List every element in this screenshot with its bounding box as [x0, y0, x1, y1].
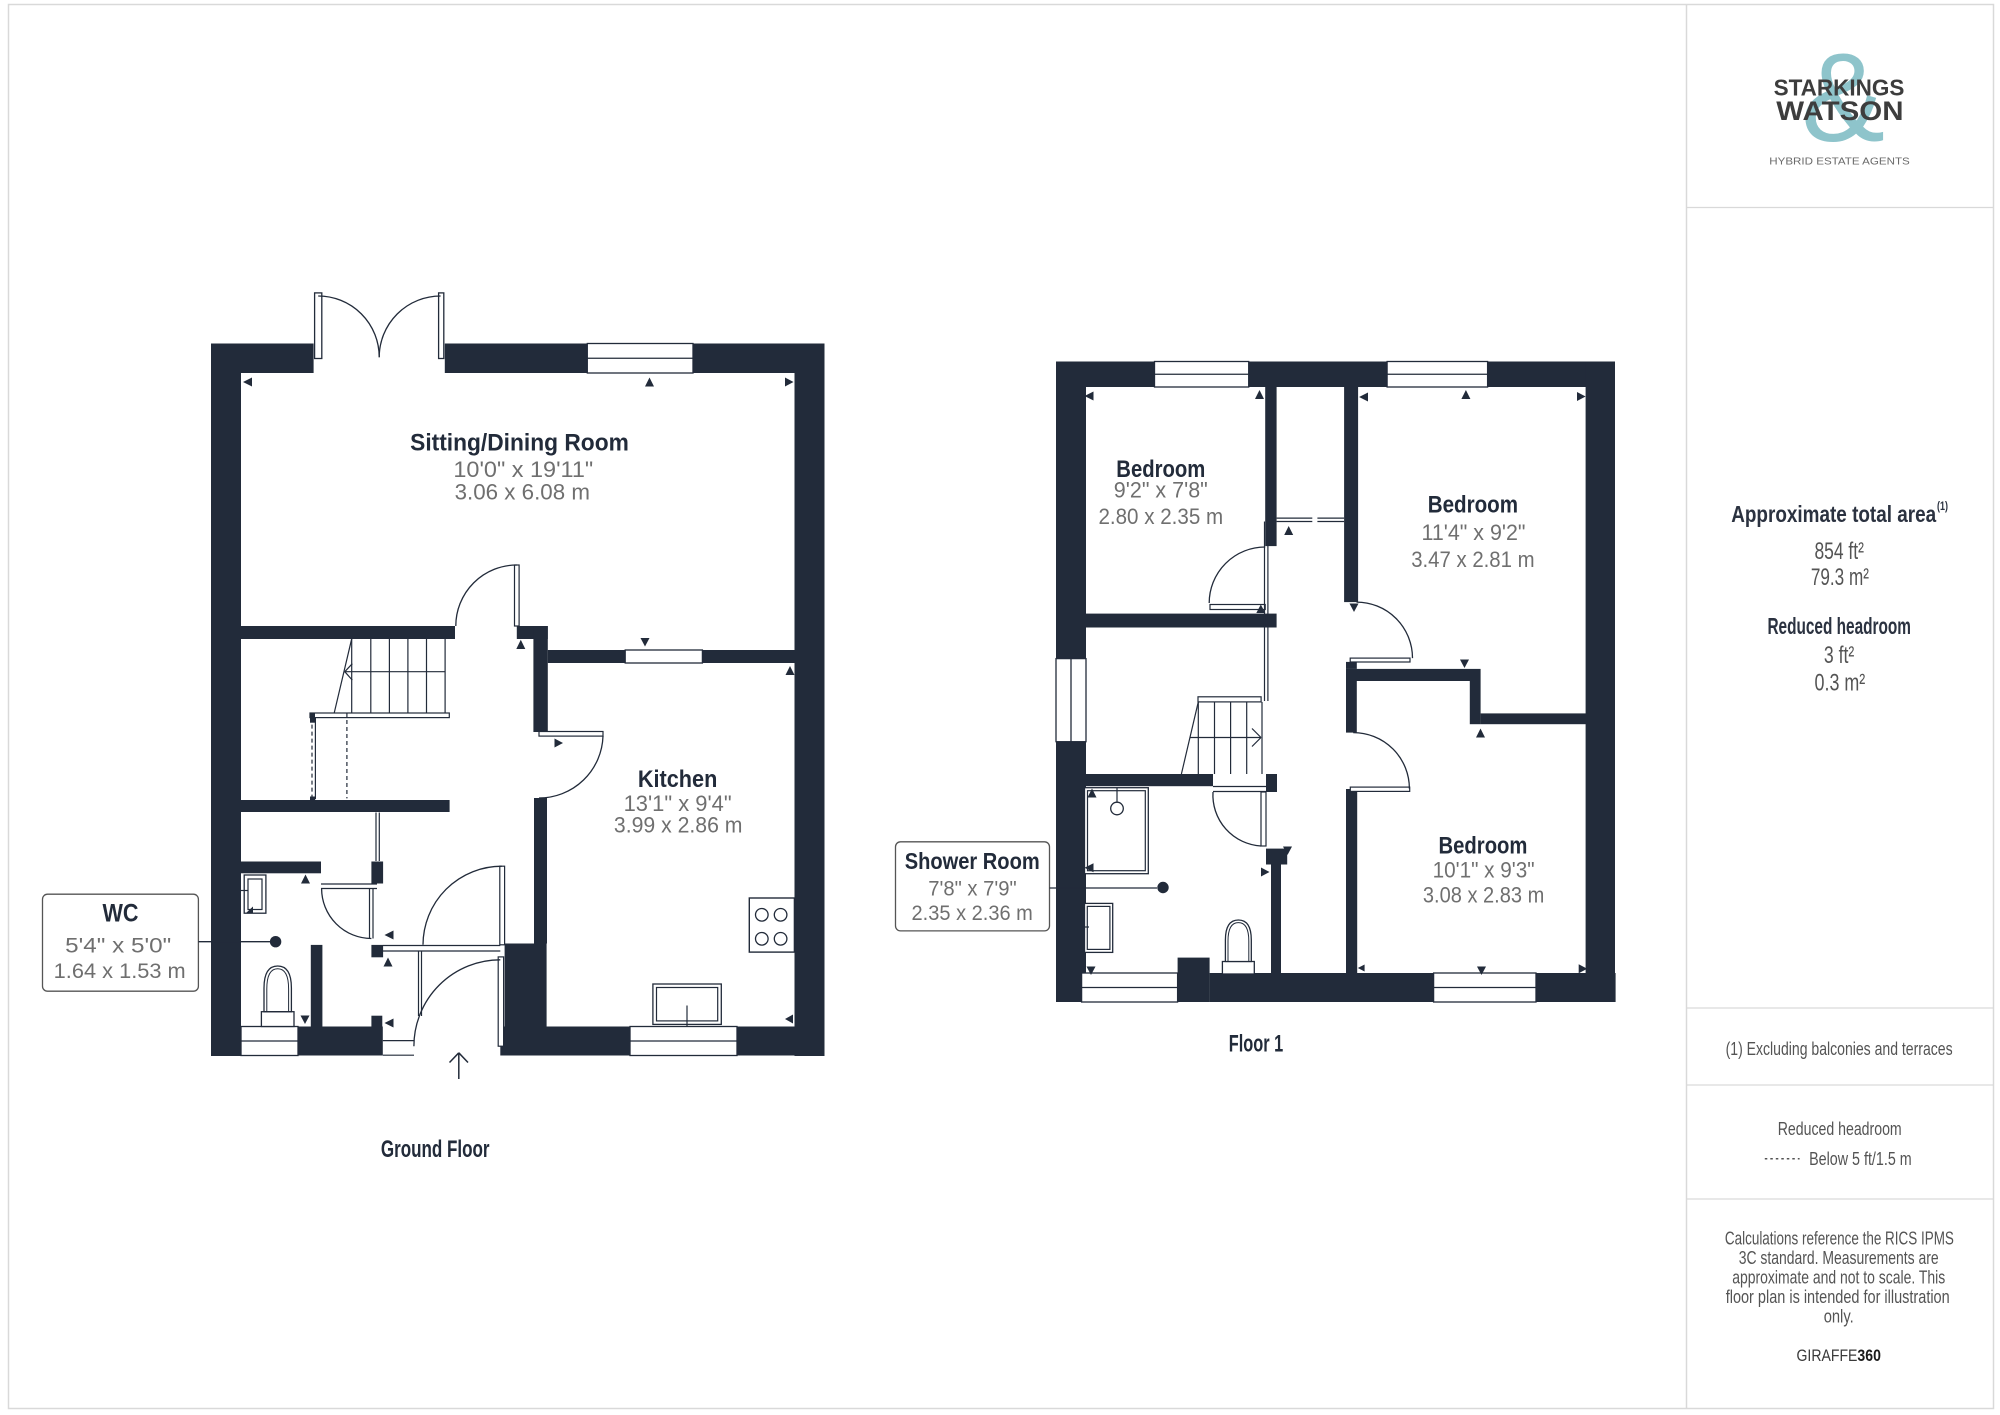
- svg-text:GIRAFFE360: GIRAFFE360: [1797, 1346, 1881, 1365]
- svg-text:10'1" x 9'3": 10'1" x 9'3": [1433, 858, 1535, 883]
- svg-text:7'8" x 7'9": 7'8" x 7'9": [928, 878, 1017, 901]
- svg-text:9'2" x 7'8": 9'2" x 7'8": [1114, 478, 1208, 503]
- svg-text:Floor 1: Floor 1: [1229, 1031, 1283, 1058]
- svg-text:11'4" x 9'2": 11'4" x 9'2": [1422, 520, 1526, 545]
- svg-text:3C standard. Measurements are: 3C standard. Measurements are: [1739, 1247, 1939, 1268]
- svg-text:2.80 x 2.35 m: 2.80 x 2.35 m: [1098, 504, 1223, 529]
- svg-text:Kitchen: Kitchen: [638, 766, 717, 793]
- svg-text:floor plan is intended for ill: floor plan is intended for illustration: [1726, 1286, 1950, 1307]
- svg-text:Bedroom: Bedroom: [1428, 492, 1518, 519]
- svg-text:WATSON: WATSON: [1776, 96, 1903, 126]
- svg-text:3 ft²: 3 ft²: [1824, 642, 1854, 669]
- svg-text:3.99 x 2.86 m: 3.99 x 2.86 m: [614, 813, 743, 838]
- svg-text:3.47 x 2.81 m: 3.47 x 2.81 m: [1411, 547, 1534, 572]
- svg-text:(1): (1): [1937, 499, 1948, 513]
- svg-text:79.3 m²: 79.3 m²: [1811, 564, 1869, 591]
- svg-text:Reduced headroom: Reduced headroom: [1778, 1118, 1902, 1139]
- svg-text:Bedroom: Bedroom: [1439, 833, 1528, 860]
- svg-text:(1) Excluding balconies and te: (1) Excluding balconies and terraces: [1726, 1038, 1953, 1059]
- svg-text:0.3 m²: 0.3 m²: [1815, 670, 1866, 697]
- svg-text:WC: WC: [103, 901, 139, 928]
- svg-text:Sitting/Dining Room: Sitting/Dining Room: [410, 430, 629, 457]
- svg-text:3.06 x 6.08 m: 3.06 x 6.08 m: [455, 479, 590, 504]
- svg-text:1.64 x 1.53 m: 1.64 x 1.53 m: [54, 960, 186, 983]
- svg-text:Approximate total area: Approximate total area: [1731, 501, 1936, 527]
- svg-text:approximate and not to scale.: approximate and not to scale. This: [1732, 1267, 1945, 1288]
- svg-text:HYBRID ESTATE AGENTS: HYBRID ESTATE AGENTS: [1769, 155, 1910, 167]
- svg-text:Below 5 ft/1.5 m: Below 5 ft/1.5 m: [1809, 1148, 1912, 1169]
- svg-text:10'0" x 19'11": 10'0" x 19'11": [453, 457, 593, 482]
- svg-text:Shower Room: Shower Room: [905, 848, 1040, 874]
- svg-text:Calculations reference the RIC: Calculations reference the RICS IPMS: [1725, 1228, 1954, 1249]
- svg-text:854 ft²: 854 ft²: [1814, 538, 1864, 565]
- svg-text:5'4" x 5'0": 5'4" x 5'0": [65, 935, 171, 958]
- svg-text:3.08 x 2.83 m: 3.08 x 2.83 m: [1423, 883, 1544, 908]
- svg-text:only.: only.: [1824, 1306, 1854, 1327]
- svg-text:Reduced headroom: Reduced headroom: [1767, 613, 1911, 639]
- svg-text:2.35 x 2.36 m: 2.35 x 2.36 m: [912, 902, 1033, 925]
- svg-text:Ground Floor: Ground Floor: [381, 1136, 490, 1163]
